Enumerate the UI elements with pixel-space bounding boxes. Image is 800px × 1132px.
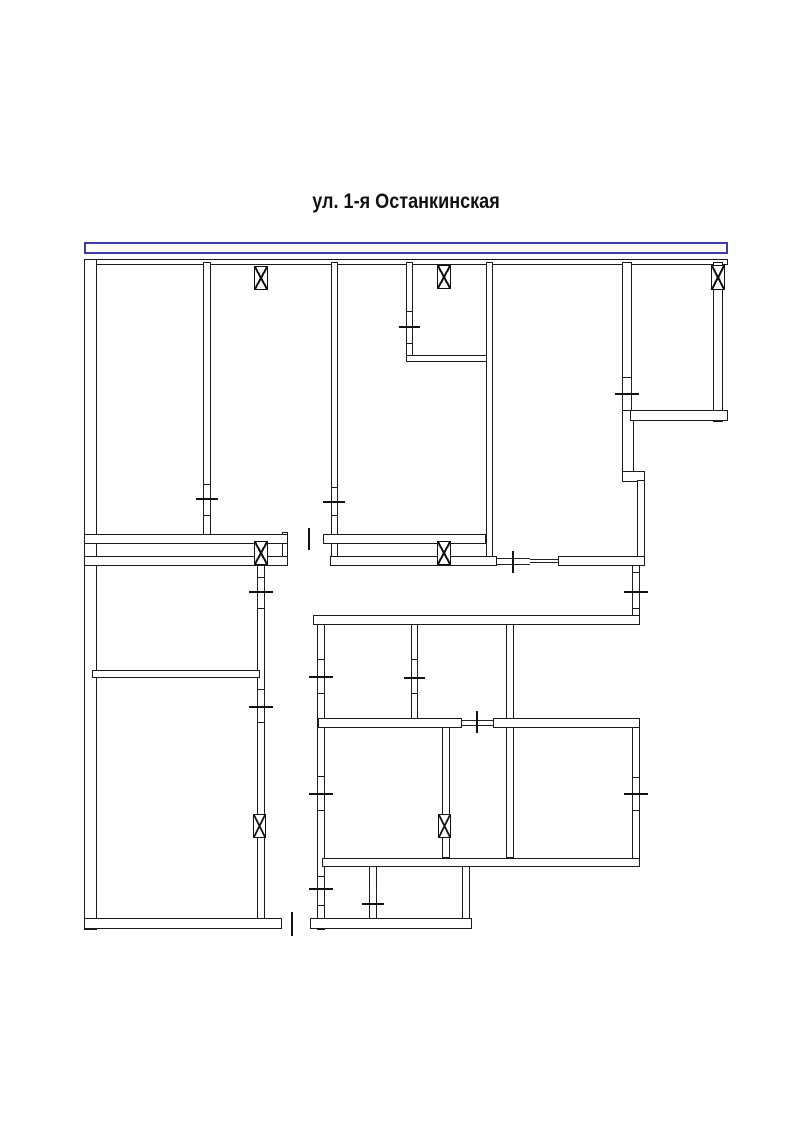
opening-tick (404, 677, 425, 679)
opening-tick (362, 903, 384, 905)
opening-tick (323, 501, 345, 503)
opening-tick (624, 591, 648, 593)
wall-segment (84, 918, 282, 929)
wall-segment (257, 565, 265, 578)
opening-tick (309, 888, 333, 890)
wall-segment (310, 918, 472, 929)
wall-segment (317, 619, 325, 660)
wall-segment (203, 262, 211, 485)
window-marker (369, 886, 377, 897)
opening-tick (615, 393, 639, 395)
wall-segment (92, 670, 260, 678)
wall-segment (622, 262, 632, 378)
wall-segment (442, 725, 450, 858)
wall-segment (506, 619, 514, 858)
wall-segment (317, 693, 325, 777)
opening-tick (308, 528, 310, 550)
wall-segment (84, 259, 97, 930)
wall-segment (406, 355, 487, 362)
opening-tick (196, 498, 218, 500)
window-marker (317, 877, 325, 905)
vent-shaft-symbol (437, 265, 451, 289)
wall-segment (486, 262, 493, 562)
wall-segment (323, 534, 486, 544)
opening-tick (309, 793, 333, 795)
window-marker (530, 559, 558, 563)
vent-shaft-symbol (253, 814, 266, 838)
wall-segment (331, 262, 338, 488)
wall-segment (406, 262, 413, 312)
vent-shaft-symbol (711, 265, 725, 290)
floor-plan-page: ул. 1-я Останкинская (0, 0, 800, 1132)
wall-segment (632, 725, 640, 778)
wall-segment (462, 862, 470, 925)
opening-tick (249, 706, 273, 708)
vent-shaft-symbol (438, 814, 451, 838)
wall-segment (330, 556, 497, 566)
opening-tick (512, 551, 514, 573)
opening-tick (476, 711, 478, 733)
wall-segment (411, 619, 418, 660)
wall-segment (322, 858, 640, 867)
vent-shaft-symbol (254, 266, 268, 290)
wall-segment (558, 556, 645, 566)
opening-tick (249, 591, 273, 593)
wall-segment (637, 480, 645, 564)
opening-tick (309, 676, 333, 678)
window-marker (203, 485, 211, 515)
opening-tick (624, 793, 648, 795)
wall-segment (318, 718, 462, 728)
opening-tick (399, 326, 420, 328)
wall-segment (493, 718, 640, 728)
wall-segment (630, 410, 728, 421)
vent-shaft-symbol (254, 541, 268, 565)
wall-segment (313, 615, 640, 625)
opening-tick (291, 912, 293, 936)
plan-layer (0, 0, 800, 1132)
vent-shaft-symbol (437, 541, 451, 565)
window-marker (257, 578, 265, 608)
